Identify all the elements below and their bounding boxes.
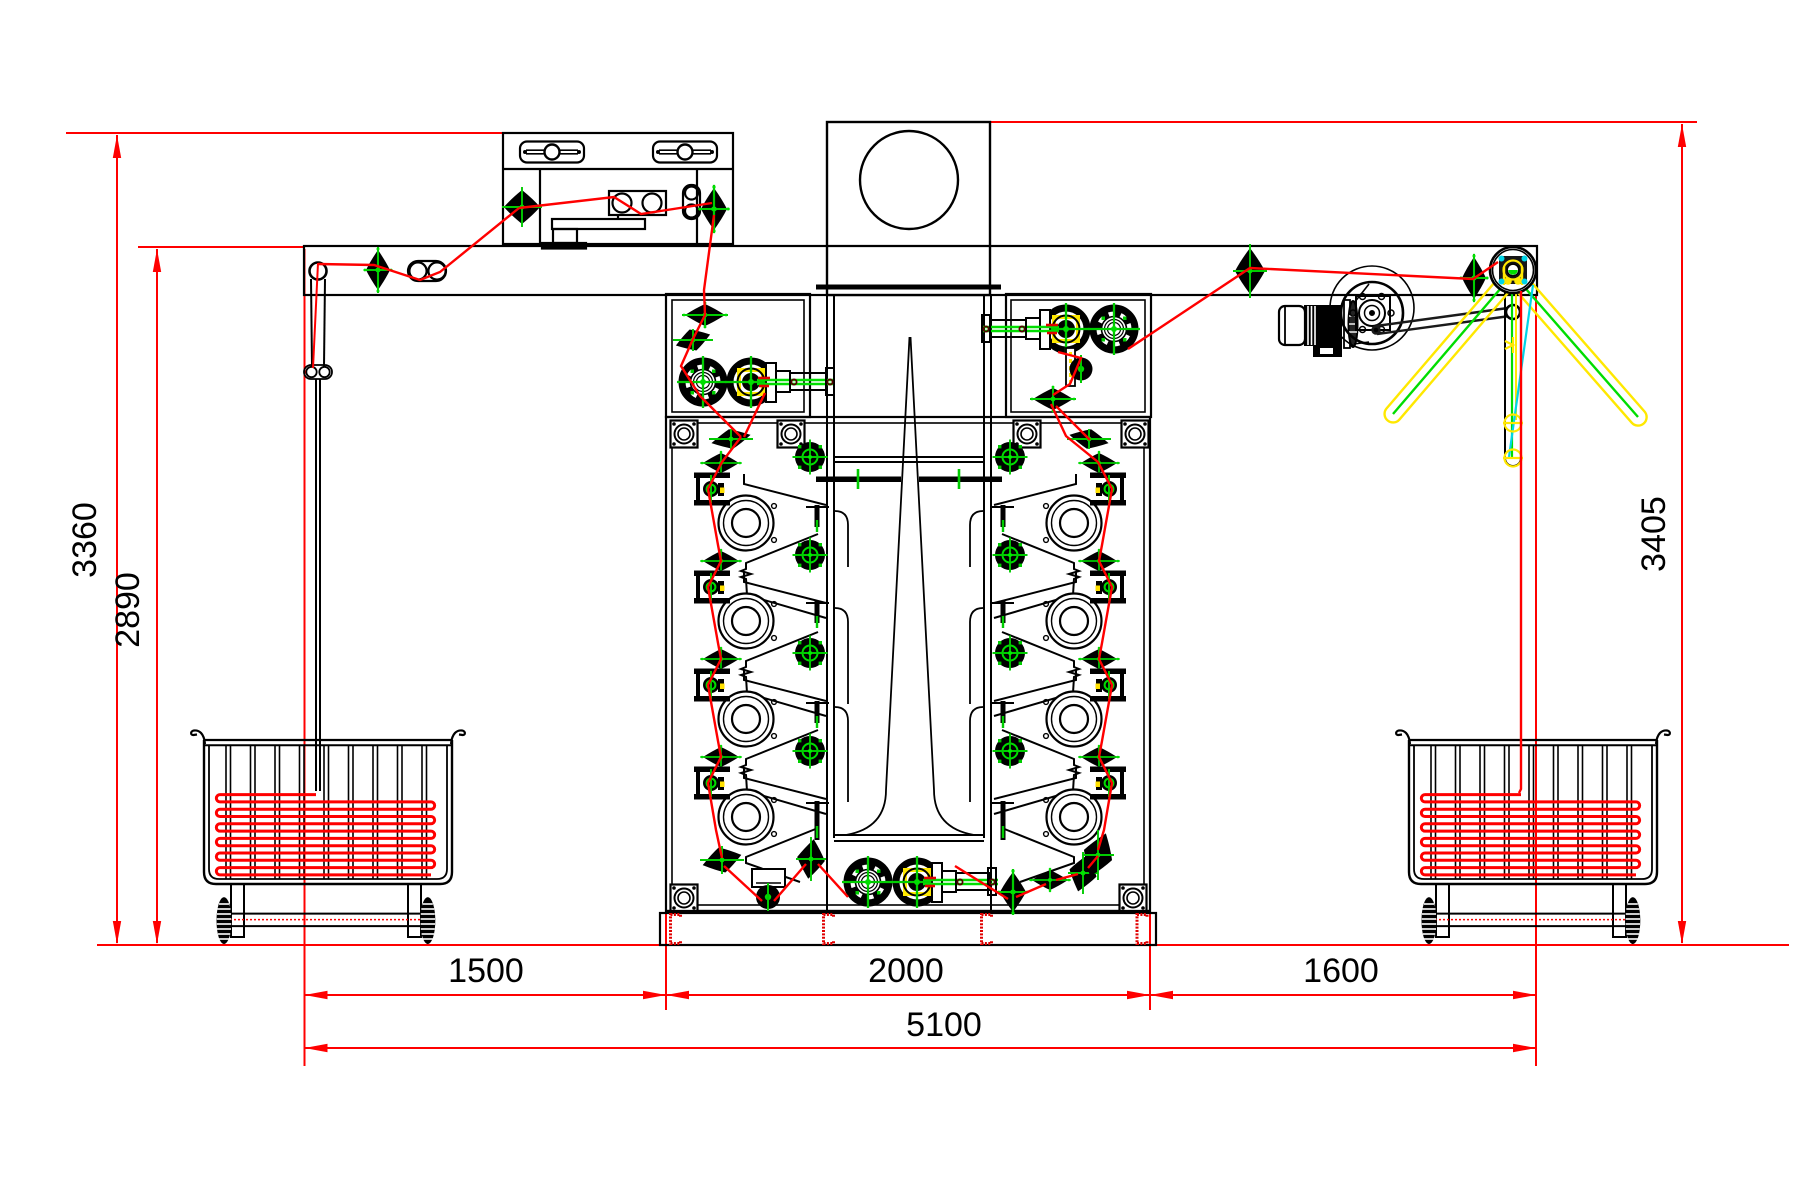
svg-text:3405: 3405 — [1635, 496, 1673, 572]
svg-text:2890: 2890 — [109, 572, 147, 648]
svg-text:5100: 5100 — [906, 1006, 982, 1044]
svg-text:1500: 1500 — [448, 952, 524, 990]
svg-text:2000: 2000 — [868, 952, 944, 990]
svg-text:1600: 1600 — [1303, 952, 1379, 990]
svg-text:3360: 3360 — [66, 502, 104, 578]
